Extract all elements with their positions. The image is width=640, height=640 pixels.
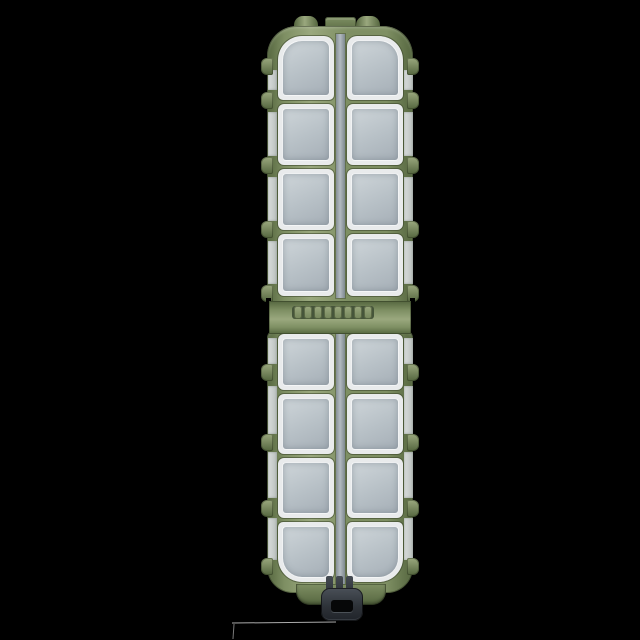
- lid-edge-segment: [404, 338, 413, 364]
- latch-buckle-hole: [331, 600, 353, 613]
- hinge-knuckle: [314, 306, 322, 319]
- compartment-lid-pane: [351, 238, 399, 292]
- center-divider-top: [336, 34, 345, 298]
- side-hinge-tab: [407, 92, 419, 109]
- hinge-knuckle: [334, 306, 342, 319]
- compartment-lid-pane: [282, 40, 330, 96]
- hinge-knuckle: [344, 306, 352, 319]
- compartment-lid-pane: [351, 173, 399, 226]
- compartment-lid: [278, 169, 334, 230]
- compartment-lid: [347, 104, 403, 165]
- lid-edge-segment: [404, 452, 413, 498]
- compartment-lid-pane: [282, 238, 330, 292]
- side-hinge-tab: [261, 500, 273, 517]
- lid-edge-segment: [268, 518, 277, 560]
- lid-edge-segment: [404, 386, 413, 434]
- compartment-lid-pane: [282, 398, 330, 450]
- lid-edge-segment: [268, 177, 277, 221]
- hinge-knuckle: [364, 306, 372, 319]
- lid-edge-segment: [268, 338, 277, 364]
- lid-edge-segment: [268, 112, 277, 156]
- lid-edge-segment: [268, 452, 277, 498]
- lid-edge-segment: [268, 241, 277, 284]
- compartment-lid: [347, 36, 403, 100]
- side-hinge-tab: [261, 92, 273, 109]
- side-hinge-tab: [407, 221, 419, 238]
- compartment-lid: [347, 394, 403, 454]
- compartment-lid-pane: [282, 526, 330, 578]
- side-hinge-tab: [407, 434, 419, 451]
- compartment-lid: [278, 522, 334, 582]
- hinge-knuckle: [294, 306, 302, 319]
- hinge-knuckle: [354, 306, 362, 319]
- compartment-lid-pane: [351, 462, 399, 514]
- compartment-lid: [347, 334, 403, 390]
- lid-edge-segment: [404, 518, 413, 560]
- lid-edge-segment: [404, 112, 413, 156]
- side-hinge-tab: [407, 558, 419, 575]
- compartment-lid-pane: [282, 338, 330, 386]
- side-hinge-tab: [407, 58, 419, 75]
- side-hinge-tab: [261, 364, 273, 381]
- floor-edge-line-vertical: [232, 624, 234, 639]
- lid-edge-segment: [404, 177, 413, 221]
- compartment-lid: [278, 334, 334, 390]
- compartment-lid-pane: [351, 40, 399, 96]
- compartment-lid: [347, 169, 403, 230]
- compartment-lid: [347, 522, 403, 582]
- lid-edge-segment: [404, 241, 413, 284]
- compartment-lid: [278, 104, 334, 165]
- compartment-lid: [278, 234, 334, 296]
- side-hinge-tab: [407, 157, 419, 174]
- center-divider-bottom: [336, 332, 345, 584]
- compartment-lid-pane: [282, 108, 330, 161]
- side-hinge-tab: [261, 221, 273, 238]
- compartment-lid-pane: [351, 108, 399, 161]
- compartment-lid-pane: [282, 173, 330, 226]
- compartment-lid-pane: [282, 462, 330, 514]
- lid-edge-segment: [268, 386, 277, 434]
- floor-edge-line: [232, 621, 336, 623]
- compartment-lid-pane: [351, 338, 399, 386]
- compartment-lid-pane: [351, 526, 399, 578]
- compartment-lid: [347, 234, 403, 296]
- compartment-lid: [278, 394, 334, 454]
- side-hinge-tab: [261, 434, 273, 451]
- hinge-knuckle: [324, 306, 332, 319]
- side-hinge-tab: [261, 558, 273, 575]
- compartment-lid: [278, 36, 334, 100]
- side-hinge-tab: [407, 364, 419, 381]
- side-hinge-tab: [407, 500, 419, 517]
- side-hinge-tab: [261, 157, 273, 174]
- compartment-lid: [347, 458, 403, 518]
- hinge-knuckle: [304, 306, 312, 319]
- compartment-lid-pane: [351, 398, 399, 450]
- side-hinge-tab: [261, 58, 273, 75]
- photo-canvas: [0, 0, 640, 640]
- compartment-lid: [278, 458, 334, 518]
